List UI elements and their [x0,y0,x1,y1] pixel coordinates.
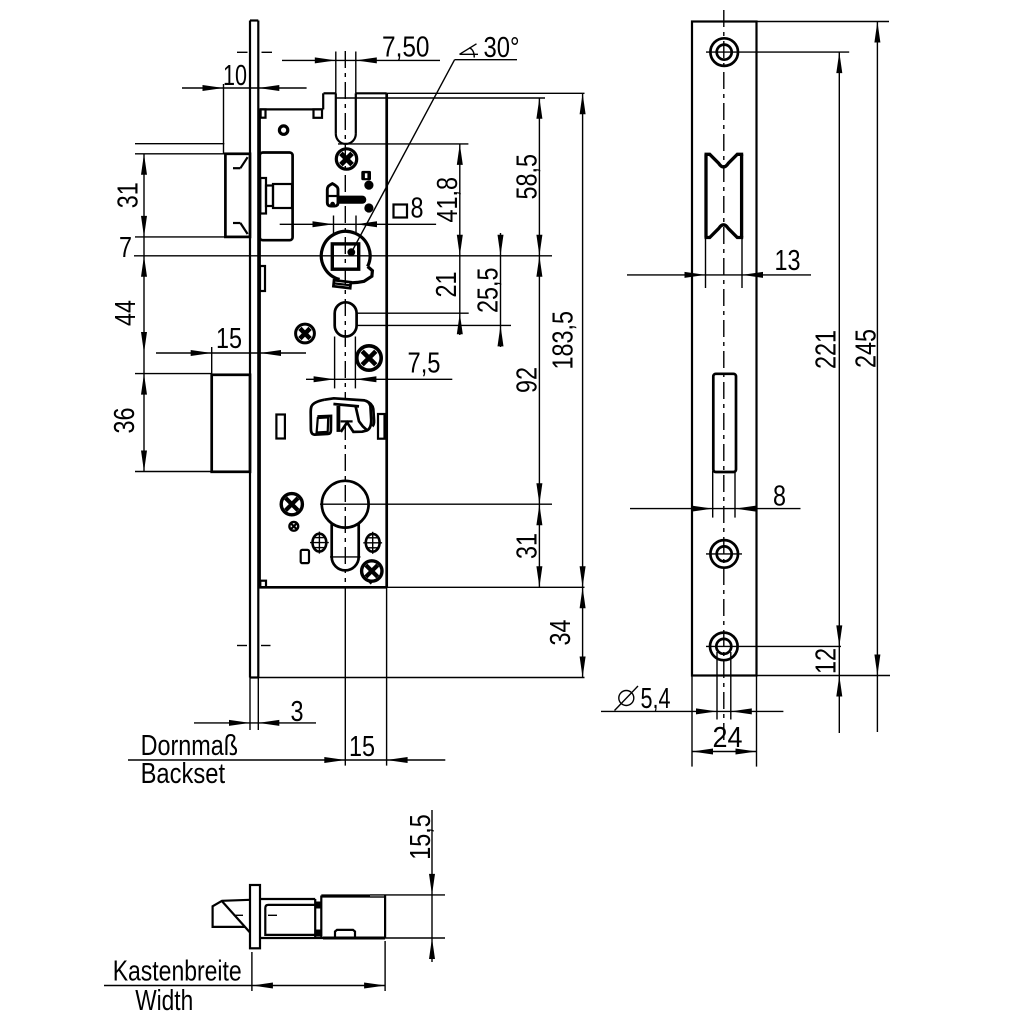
svg-text:25,5: 25,5 [473,268,505,314]
svg-text:24: 24 [713,722,743,754]
svg-text:Backset: Backset [141,758,226,790]
svg-text:Width: Width [135,985,193,1017]
svg-text:7,50: 7,50 [382,32,430,64]
svg-text:15,5: 15,5 [405,814,437,860]
svg-text:5,4: 5,4 [641,683,671,715]
svg-text:183,5: 183,5 [548,311,580,370]
svg-text:41,8: 41,8 [432,177,464,223]
svg-text:7: 7 [119,232,132,264]
svg-text:Kastenbreite: Kastenbreite [113,956,242,988]
svg-text:3: 3 [291,696,304,728]
svg-text:13: 13 [775,245,801,277]
svg-text:92: 92 [512,367,544,393]
svg-text:12: 12 [811,648,843,674]
svg-text:34: 34 [545,620,577,646]
svg-text:10: 10 [223,60,247,92]
svg-text:221: 221 [811,330,843,369]
svg-text:21: 21 [431,272,463,298]
svg-text:245: 245 [851,329,883,368]
svg-text:31: 31 [113,182,145,208]
svg-text:31: 31 [512,533,544,559]
svg-text:8: 8 [773,481,786,513]
svg-text:15: 15 [216,323,242,355]
svg-text:36: 36 [109,408,141,434]
svg-text:58,5: 58,5 [512,154,544,200]
svg-text:44: 44 [110,300,142,326]
svg-text:15: 15 [349,731,375,763]
svg-text:8: 8 [411,193,424,225]
svg-text:7,5: 7,5 [408,348,441,380]
